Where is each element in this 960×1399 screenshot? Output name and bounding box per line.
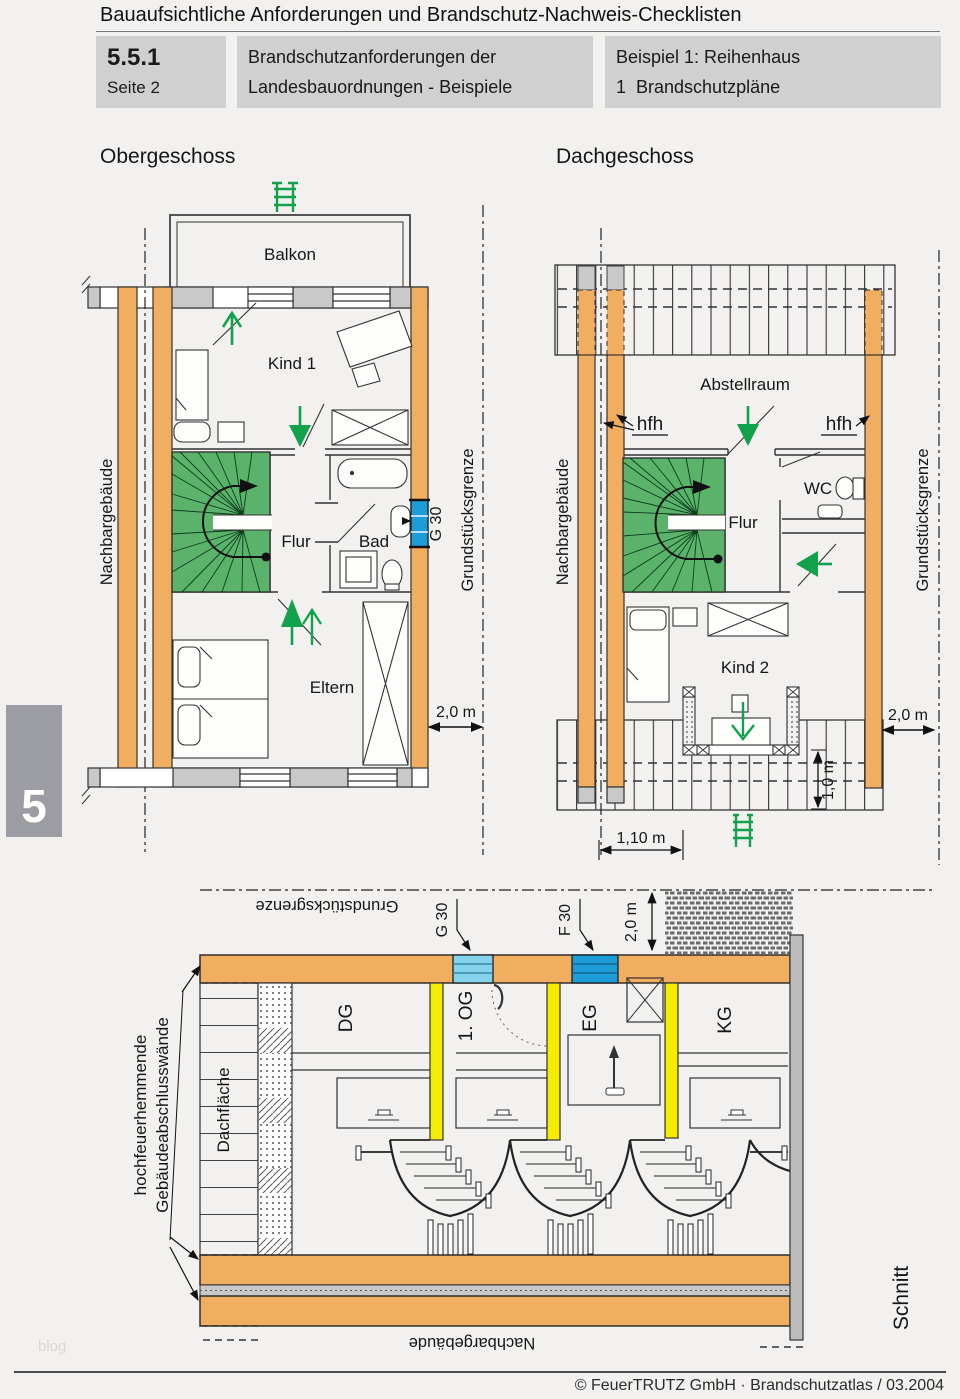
floor-label-dg: DG bbox=[336, 1004, 357, 1033]
neighbor-label: Nachbargebäude bbox=[98, 459, 116, 586]
section-number: 5.5.1 bbox=[107, 42, 216, 74]
svg-text:F 30: F 30 bbox=[557, 904, 574, 936]
property-line-label: Grundstücksgrenze bbox=[914, 448, 932, 591]
property-line-label: Grundstücksgrenze bbox=[459, 448, 477, 591]
example-line1: Beispiel 1: Reihenhaus bbox=[616, 42, 931, 72]
dimension-2m: 2,0 m bbox=[623, 893, 652, 950]
title-divider bbox=[96, 31, 940, 32]
svg-text:Gebäudeabschlusswände: Gebäudeabschlusswände bbox=[153, 1017, 172, 1213]
section-title: Schnitt bbox=[890, 1266, 913, 1330]
roof-wall-band bbox=[200, 955, 790, 983]
svg-text:2,0 m: 2,0 m bbox=[623, 902, 640, 942]
party-wall-bands bbox=[200, 1255, 790, 1326]
ladder-icon bbox=[733, 815, 753, 847]
neighbor-label: Nachbargebäude bbox=[409, 1334, 536, 1352]
watermark: blog bbox=[38, 1338, 66, 1355]
chapter-tab: 5 bbox=[6, 705, 62, 837]
firewall-note: hochfeuerhemmende Gebäudeabschlusswände bbox=[131, 966, 200, 1300]
floor-label-og: 1. OG bbox=[456, 991, 477, 1042]
roof-band-top bbox=[555, 265, 895, 355]
dormer bbox=[683, 687, 799, 755]
document-title: Bauaufsichtliche Anforderungen und Brand… bbox=[100, 4, 741, 27]
dimension-2m-label: 2,0 m bbox=[436, 704, 476, 721]
section-page: Seite 2 bbox=[107, 74, 216, 102]
example-box: Beispiel 1: Reihenhaus 1 Brandschutzplän… bbox=[605, 36, 941, 108]
svg-text:hochfeuerhemmende: hochfeuerhemmende bbox=[131, 1035, 150, 1196]
south-wall bbox=[82, 768, 428, 804]
floorplan-dachgeschoss: Dachgeschoss Abstellraum bbox=[540, 135, 960, 865]
document-page: Bauaufsichtliche Anforderungen und Brand… bbox=[0, 0, 960, 1399]
plan-title-obergeschoss: Obergeschoss bbox=[100, 145, 235, 168]
example-line2: 1 Brandschutzpläne bbox=[616, 72, 931, 102]
room-label-kind2: Kind 2 bbox=[721, 658, 769, 677]
room-label-wc: WC bbox=[804, 479, 832, 498]
section-topic-box: Brandschutzanforderungen der Landesbauor… bbox=[237, 36, 593, 108]
floor-label-kg: KG bbox=[715, 1006, 736, 1033]
roof-surface-label: Dachfläche bbox=[214, 1067, 233, 1152]
dimension-110: 1,10 m bbox=[599, 830, 683, 860]
topic-line1: Brandschutzanforderungen der bbox=[248, 42, 583, 72]
svg-text:1,10 m: 1,10 m bbox=[617, 830, 666, 847]
svg-text:hfh: hfh bbox=[637, 414, 663, 435]
room-label-flur: Flur bbox=[281, 532, 311, 551]
staircase bbox=[623, 458, 725, 592]
ladder-icon bbox=[272, 183, 298, 212]
bath-fixtures bbox=[338, 459, 411, 590]
room-label-balkon: Balkon bbox=[264, 245, 316, 264]
property-line-label: Grundstücksgrenze bbox=[255, 897, 398, 915]
room-label-kind1: Kind 1 bbox=[268, 354, 316, 373]
svg-text:G 30: G 30 bbox=[434, 903, 451, 938]
masonry-hatch bbox=[665, 891, 793, 954]
floor-label-eg: EG bbox=[580, 1004, 601, 1031]
furniture-kind1 bbox=[174, 311, 412, 445]
topic-line2: Landesbauordnungen - Beispiele bbox=[248, 72, 583, 102]
plan-title-dachgeschoss: Dachgeschoss bbox=[556, 145, 694, 168]
neighbor-wall-bar bbox=[790, 935, 803, 1340]
section-number-box: 5.5.1 Seite 2 bbox=[96, 36, 226, 108]
floors: DG 1. OG EG KG bbox=[292, 978, 788, 1140]
door-swing-arc bbox=[492, 990, 548, 1046]
neighbor-label: Nachbargebäude bbox=[554, 459, 572, 586]
room-label-abstellraum: Abstellraum bbox=[700, 375, 790, 394]
g30-glazing bbox=[409, 500, 430, 547]
room-label-eltern: Eltern bbox=[310, 678, 354, 697]
footer-credit: © FeuerTRUTZ GmbH · Brandschutzatlas / 0… bbox=[575, 1377, 944, 1395]
g30-annotation: G 30 bbox=[434, 899, 470, 950]
staircase bbox=[172, 452, 272, 592]
floorplan-obergeschoss: Obergeschoss Balkon bbox=[80, 135, 505, 865]
dimension-2m-label: 2,0 m bbox=[888, 707, 928, 724]
f30-annotation: F 30 bbox=[557, 899, 593, 950]
room-label-bad: Bad bbox=[359, 532, 389, 551]
room-label-flur: Flur bbox=[728, 513, 758, 532]
g30-label: G 30 bbox=[428, 507, 445, 542]
section-drawing: Grundstücksgrenze G 30 F 30 2,0 m bbox=[130, 865, 960, 1365]
hfh-annotation-right: hfh bbox=[821, 414, 869, 435]
svg-text:hfh: hfh bbox=[826, 414, 852, 435]
svg-text:1,0 m: 1,0 m bbox=[820, 760, 837, 800]
footer-divider bbox=[14, 1371, 946, 1373]
